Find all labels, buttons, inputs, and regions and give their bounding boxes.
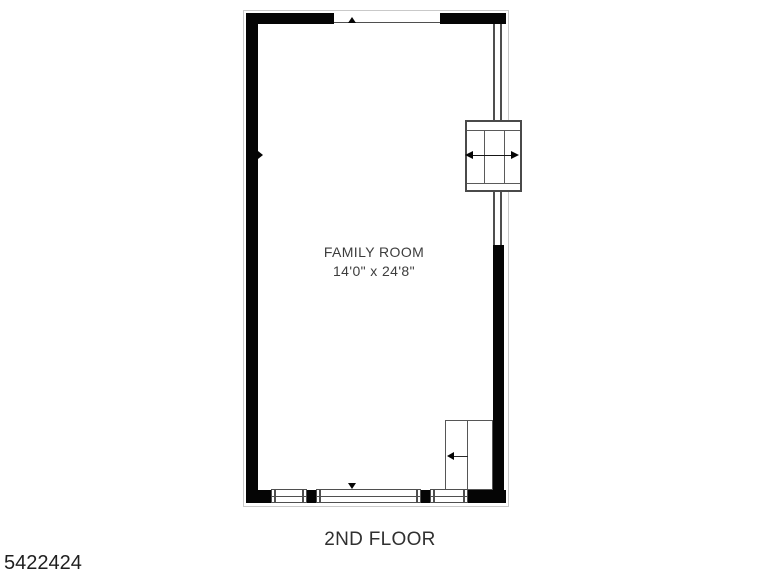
window-bottom-center bbox=[316, 489, 421, 503]
closet-divider-line bbox=[467, 421, 468, 489]
bay-bottom-rail bbox=[467, 183, 520, 184]
window-cap bbox=[302, 490, 304, 502]
window-cap bbox=[463, 490, 465, 502]
room-dimensions-label: 14'0" x 24'8" bbox=[274, 262, 474, 281]
wall-tick-left-icon bbox=[258, 151, 263, 159]
bay-top-rail bbox=[467, 130, 520, 131]
wall-left bbox=[246, 13, 258, 503]
right-glass-lower-inner-line bbox=[500, 191, 502, 245]
listing-number: 5422424 bbox=[4, 552, 82, 575]
wall-bottom-right-corner bbox=[468, 490, 506, 503]
right-glass-upper-inner-line bbox=[500, 24, 502, 120]
room-name-label: FAMILY ROOM bbox=[274, 243, 474, 262]
window-mid-line bbox=[317, 496, 420, 497]
window-bottom-left bbox=[271, 489, 307, 503]
window-mid-line bbox=[431, 496, 467, 497]
floor-plan-page: FAMILY ROOM 14'0" x 24'8" 2ND FLOOR 5422… bbox=[0, 0, 768, 576]
window-cap bbox=[274, 490, 276, 502]
window-cap bbox=[416, 490, 418, 502]
closet bbox=[445, 420, 493, 490]
closet-arrow-line bbox=[452, 456, 468, 457]
right-glass-upper-outer-line bbox=[493, 24, 495, 120]
closet-arrow-left-icon bbox=[447, 452, 454, 460]
right-glass-lower-outer-line bbox=[493, 191, 495, 245]
window-bottom-right bbox=[430, 489, 468, 503]
floor-title: 2ND FLOOR bbox=[280, 529, 480, 551]
wall-right-lower bbox=[493, 245, 504, 503]
opening-marker-bottom-icon bbox=[348, 483, 356, 489]
wall-bottom-left-corner bbox=[246, 490, 272, 503]
bay-mullion-left bbox=[484, 130, 485, 183]
window-cap bbox=[433, 490, 435, 502]
opening-marker-top-icon bbox=[348, 17, 356, 23]
bay-arrow-right-icon bbox=[511, 151, 519, 159]
wall-top-right-segment bbox=[440, 13, 506, 24]
bay-arrow-line bbox=[472, 155, 516, 156]
bay-mullion-right bbox=[504, 130, 505, 183]
bay-arrow-left-icon bbox=[465, 151, 473, 159]
wall-top-left-segment bbox=[246, 13, 334, 24]
window-mid-line bbox=[272, 496, 306, 497]
window-cap bbox=[319, 490, 321, 502]
